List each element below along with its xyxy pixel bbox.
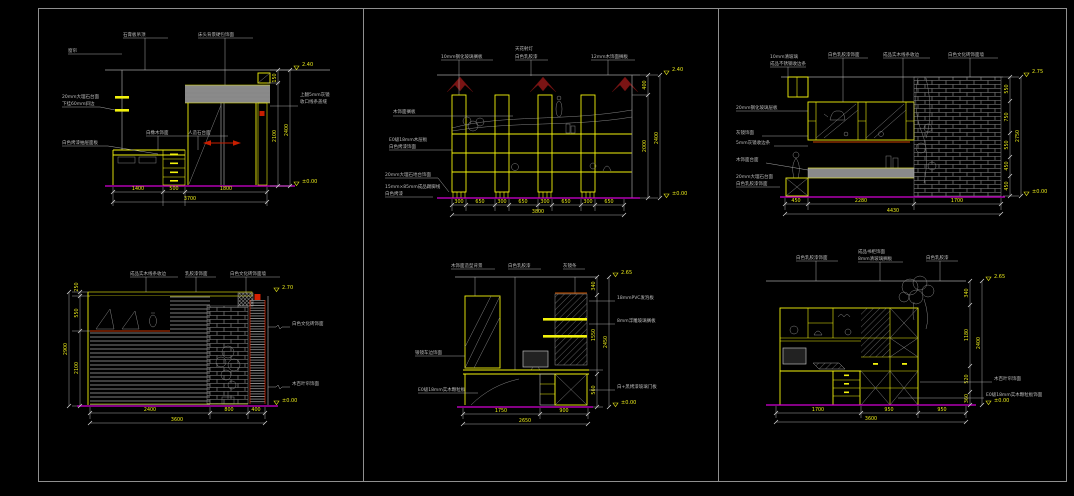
p6-dim: 340	[964, 288, 970, 297]
annotation-label: 上翻5mm灰镜	[300, 91, 330, 98]
p4-dim: 2400	[144, 407, 156, 413]
p6-dim: 1180	[964, 329, 970, 341]
annotation-label: 乳胶漆饰面	[185, 270, 208, 277]
p4-blind-strip	[250, 300, 265, 404]
p6-dim: 1700	[812, 407, 824, 413]
viewport-elevation-6[interactable]: 1700 950 950 3600 340 1180 520 360 2400 …	[718, 247, 1068, 483]
p2-dim: 2000	[642, 140, 648, 152]
p3-corner-box	[797, 77, 808, 97]
p2-drawing	[437, 75, 640, 198]
annotation-label: 石膏板吊顶	[123, 31, 146, 38]
p6-dim: 950	[884, 407, 893, 413]
p5-dim: 1750	[495, 408, 507, 414]
annotation-label: 银镜车边饰面	[415, 349, 442, 356]
p6-right-shelves	[861, 308, 918, 405]
annotation-label: 20mm大理石地台饰面	[385, 171, 431, 178]
p5-drawer-tower	[540, 374, 555, 405]
p5-dim-total: 2650	[519, 418, 531, 424]
p2-spotlight	[612, 77, 638, 92]
annotation-label: 灰镜条	[563, 262, 577, 269]
p1-dim: 500	[169, 186, 178, 192]
p5-dim: 1550	[591, 329, 597, 341]
p3-dim: 1700	[951, 198, 963, 204]
p1-dim: 150	[272, 73, 278, 82]
p4-dim: 250	[74, 282, 80, 291]
p2-dim: 650	[561, 199, 570, 205]
p1-dim-total: 3700	[184, 196, 196, 202]
annotation-label: 成品实木线条收边	[883, 51, 919, 58]
p2-pillars	[452, 95, 595, 198]
annotation-label: 20mm大理石台面	[736, 173, 773, 180]
annotation-label: 5mm灰镜收边条	[736, 139, 771, 146]
annotation-label: 白色烤漆饰面	[389, 143, 416, 150]
annotation-label: 8mm清玻璃搁板	[858, 255, 893, 262]
annotation-label: 窗帘	[68, 47, 77, 54]
p5-monitor	[523, 351, 548, 370]
p1-level-bottom: ±0.00	[302, 179, 317, 185]
p4-dim-left-total: 2900	[63, 343, 69, 355]
annotation-label: E0级18mm实木颗粒板饰面	[986, 391, 1043, 398]
p3-figure	[793, 152, 800, 178]
p2-dim-total: 3800	[532, 209, 544, 215]
p4-niche	[90, 296, 170, 331]
p5-level-top: 2.65	[621, 270, 632, 276]
annotation-label: 白色乳胶漆	[508, 262, 531, 269]
p2-level-top: 2.40	[672, 67, 683, 73]
p1-dim: 1400	[132, 186, 144, 192]
p3-dim: 550	[1004, 140, 1010, 149]
p4-dim: 550	[74, 308, 80, 317]
annotation-label: 10mm钢化玻璃搁板	[441, 53, 483, 60]
p1-sill-tick	[115, 96, 129, 99]
p3-dim: 450	[791, 198, 800, 204]
annotation-label: 成品实木线条收边	[130, 270, 166, 277]
p3-drawing	[780, 77, 1005, 197]
p2-dim: 300	[540, 199, 549, 205]
p4-dim: 2100	[74, 362, 80, 374]
annotation-label: 8mm浮雕玻璃搁板	[617, 317, 656, 324]
p3-dim: 450	[1004, 181, 1010, 190]
p3-side-table	[786, 178, 808, 196]
p6-monitor	[783, 348, 806, 364]
annotation-label: 白色乳胶漆	[926, 254, 949, 261]
p6-keyboard	[813, 363, 845, 369]
annotation-label: 白色烤漆抽屉面板	[62, 139, 98, 146]
annotation-label: 收口线条盖缝	[300, 98, 327, 105]
p1-level-top: 2.40	[302, 62, 313, 68]
p2-level-bottom: ±0.00	[672, 191, 687, 197]
p2-dim: 650	[475, 199, 484, 205]
p3-dim: 450	[1004, 161, 1010, 170]
annotation-label: 18mmPVC发泡板	[617, 294, 654, 301]
p2-dim: 650	[604, 199, 613, 205]
p1-lintel	[185, 85, 270, 103]
p2-decor-items	[463, 96, 611, 171]
annotation-label: 成品不锈钢收边条	[770, 60, 806, 67]
p3-display-cabinet	[808, 102, 914, 140]
p4-top-band	[88, 292, 252, 296]
annotation-label: 20mm钢化玻璃层板	[736, 104, 778, 111]
p5-dim-right-total: 2450	[603, 336, 609, 348]
p2-dim: 300	[454, 199, 463, 205]
p2-dimensions: 300 650 300 650 300 650 300 650 3800 400…	[450, 67, 687, 217]
cad-model-space[interactable]: 1400 500 1800 3700 150 2100 2400 2.40 ±0…	[0, 0, 1074, 496]
p5-hatch-panel	[543, 293, 587, 365]
annotation-label: 20mm大理石台面	[62, 93, 99, 100]
annotation-label: 木饰面搁板	[393, 108, 416, 115]
p4-drawing	[77, 292, 278, 406]
annotation-label: 白色乳胶漆	[515, 53, 538, 60]
annotation-label: 白色烤漆	[385, 190, 403, 197]
p2-dim: 300	[583, 199, 592, 205]
annotation-label: 白色文化砖饰面墙	[230, 270, 266, 277]
annotation-label: 灰镜饰面	[736, 129, 754, 136]
p4-dim: 800	[224, 407, 233, 413]
p2-dim: 300	[497, 199, 506, 205]
p3-level-top: 2.75	[1032, 69, 1043, 75]
annotation-label: 白色乳胶漆饰面	[736, 180, 768, 187]
annotation-label: 15mm×85mm成品踢脚线	[385, 183, 441, 190]
p4-level-top: 2.70	[282, 285, 293, 291]
p6-dim: 360	[964, 394, 970, 403]
annotation-label: 床头背景硬包饰面	[198, 31, 234, 38]
annotation-label: 木百叶帘饰面	[292, 380, 319, 387]
p3-brick-wall	[914, 77, 1001, 196]
p2-spotlight	[530, 77, 556, 92]
p3-dim-total: 4430	[887, 208, 899, 214]
annotation-label: 天花射灯	[515, 45, 533, 52]
p4-dim-total: 3600	[171, 417, 183, 423]
p5-dimensions: 1750 900 2650 340 1550 560 2450 2.65 ±0.…	[461, 270, 636, 426]
p3-dim: 550	[1004, 84, 1010, 93]
p6-level-top: 2.65	[994, 274, 1005, 280]
p6-plant	[899, 276, 934, 329]
p6-dim: 950	[937, 407, 946, 413]
annotation-label: E0级18mm实木颗粒板	[418, 386, 466, 393]
annotation-label: 人造石台面	[188, 129, 211, 136]
annotation-label: 白色文化砖饰面	[292, 320, 324, 327]
annotation-label: 成品书柜饰面	[858, 248, 885, 255]
p1-dim-right-total: 2400	[284, 124, 290, 136]
annotation-label: 白+黑烤漆玻璃门板	[617, 383, 657, 390]
p2-dim-right-total: 2400	[654, 132, 660, 144]
p6-dim-total: 3600	[865, 416, 877, 422]
p6-shelf-items	[790, 315, 851, 336]
p5-level-bottom: ±0.00	[621, 400, 636, 406]
p4-red-accent	[255, 294, 261, 300]
p6-unit	[780, 308, 918, 405]
annotation-label: 下挂60mm斜边	[62, 100, 95, 107]
p1-desk	[113, 150, 185, 185]
p4-brick-column	[207, 306, 248, 404]
p5-drawing	[455, 277, 597, 407]
p5-dim: 340	[591, 281, 597, 290]
annotation-label: 10mm清玻璃	[770, 53, 798, 60]
p1-dimensions: 1400 500 1800 3700 150 2100 2400 2.40 ±0…	[111, 62, 317, 206]
annotation-label: E0级18mm木层板	[389, 136, 428, 143]
viewport-elevation-4[interactable]: 2400 800 400 3600 250 550 2100 2900 2.70…	[38, 247, 363, 483]
annotation-label: 白色文化砖饰面墙	[948, 51, 984, 58]
p2-dim: 650	[518, 199, 527, 205]
p3-dim-right-total: 2750	[1015, 130, 1021, 142]
p2-spotlight	[447, 77, 473, 92]
annotation-label: 白色乳胶漆饰面	[828, 51, 860, 58]
annotation-label: 白色乳胶漆饰面	[796, 254, 828, 261]
p5-shelf	[543, 318, 587, 321]
p6-level-bottom: ±0.00	[994, 398, 1009, 404]
p1-dim: 1800	[220, 186, 232, 192]
p5-desk	[463, 370, 589, 405]
p2-dim: 400	[642, 80, 648, 89]
annotation-label: 木饰面造型背景	[451, 262, 483, 269]
annotation-label: 白橡木饰面	[146, 129, 169, 136]
p1-drawing	[105, 70, 330, 186]
viewport-elevation-3[interactable]: 450 2280 1700 4430 550 750 550 450 450 2…	[718, 8, 1068, 247]
p4-dim: 400	[251, 407, 260, 413]
p5-mirror	[465, 296, 500, 368]
p4-level-bottom: ±0.00	[282, 398, 297, 404]
p5-annotations: 木饰面造型背景 白色乳胶漆 灰镜条 18mmPVC发泡板 8mm浮雕玻璃搁板 白…	[415, 262, 657, 393]
viewport-elevation-2[interactable]: 300 650 300 650 300 650 300 650 3800 400…	[363, 8, 718, 247]
p6-dimensions: 1700 950 950 3600 340 1180 520 360 2400 …	[774, 274, 1009, 424]
p3-level-bottom: ±0.00	[1032, 189, 1047, 195]
p3-dim: 750	[1004, 112, 1010, 121]
annotation-label: 木百叶帘饰面	[994, 375, 1021, 382]
p6-drawing	[766, 276, 976, 405]
annotation-label: 木饰面台面	[736, 156, 759, 163]
viewport-elevation-1[interactable]: 1400 500 1800 3700 150 2100 2400 2.40 ±0…	[38, 8, 363, 247]
p5-x-cabinet	[555, 374, 587, 405]
p3-dim: 2280	[855, 198, 867, 204]
p5-dim: 900	[559, 408, 568, 414]
annotation-label: 12mm木饰面搁板	[591, 53, 628, 60]
p3-desk	[808, 168, 914, 178]
p5-shelf	[543, 335, 587, 338]
p6-dim-right-total: 2400	[976, 337, 982, 349]
p1-dim: 2100	[272, 130, 278, 142]
viewport-elevation-5[interactable]: 1750 900 2650 340 1550 560 2450 2.65 ±0.…	[363, 247, 718, 483]
